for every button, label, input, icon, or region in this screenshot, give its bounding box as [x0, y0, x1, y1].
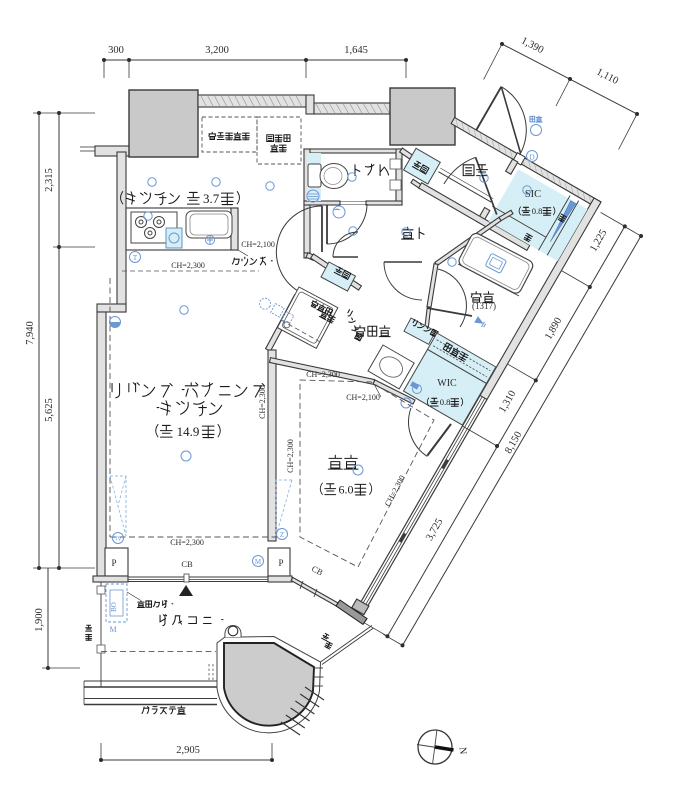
svg-text:14.9: 14.9	[177, 424, 200, 439]
svg-text:300: 300	[108, 45, 124, 56]
svg-text:CH=2,300: CH=2,300	[286, 439, 295, 473]
svg-text:M: M	[255, 558, 262, 566]
svg-text:(1317): (1317)	[472, 301, 496, 311]
svg-text:1,900: 1,900	[34, 608, 45, 632]
svg-text:P: P	[111, 558, 116, 568]
svg-text:CB: CB	[181, 559, 193, 569]
svg-text:6.0: 6.0	[339, 483, 354, 497]
svg-text:BO: BO	[110, 602, 118, 612]
svg-text:CH=2,300: CH=2,300	[171, 261, 205, 270]
svg-text:P: P	[278, 558, 283, 568]
svg-text:CH=2,100: CH=2,100	[346, 393, 380, 402]
svg-text:5,625: 5,625	[44, 398, 55, 422]
svg-text:CH=2,100: CH=2,100	[241, 240, 275, 249]
svg-text:M: M	[109, 625, 116, 634]
svg-text:N: N	[457, 747, 469, 755]
svg-text:D: D	[529, 153, 535, 162]
svg-text:0.8: 0.8	[532, 206, 543, 216]
svg-text:0.8: 0.8	[440, 397, 451, 407]
svg-text:Z: Z	[280, 531, 284, 539]
svg-text:T: T	[133, 254, 138, 262]
svg-text:2,905: 2,905	[176, 745, 200, 756]
svg-text:TV: TV	[115, 537, 122, 543]
svg-text:3,200: 3,200	[205, 45, 229, 56]
svg-text:2,315: 2,315	[44, 168, 55, 192]
svg-text:3.7: 3.7	[203, 191, 220, 206]
svg-text:CH=2,300: CH=2,300	[170, 538, 204, 547]
svg-text:7,940: 7,940	[25, 321, 36, 345]
svg-text:WIC: WIC	[437, 378, 457, 389]
svg-text:CH=2,300: CH=2,300	[306, 370, 340, 379]
svg-text:1,645: 1,645	[344, 45, 368, 56]
